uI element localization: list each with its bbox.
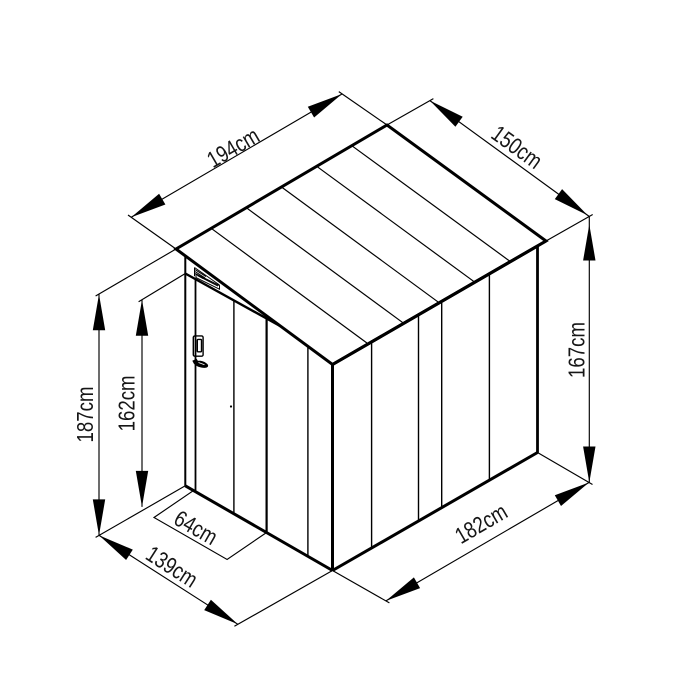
svg-text:162cm: 162cm (114, 375, 140, 431)
svg-text:187cm: 187cm (72, 387, 98, 443)
svg-text:167cm: 167cm (563, 322, 589, 378)
